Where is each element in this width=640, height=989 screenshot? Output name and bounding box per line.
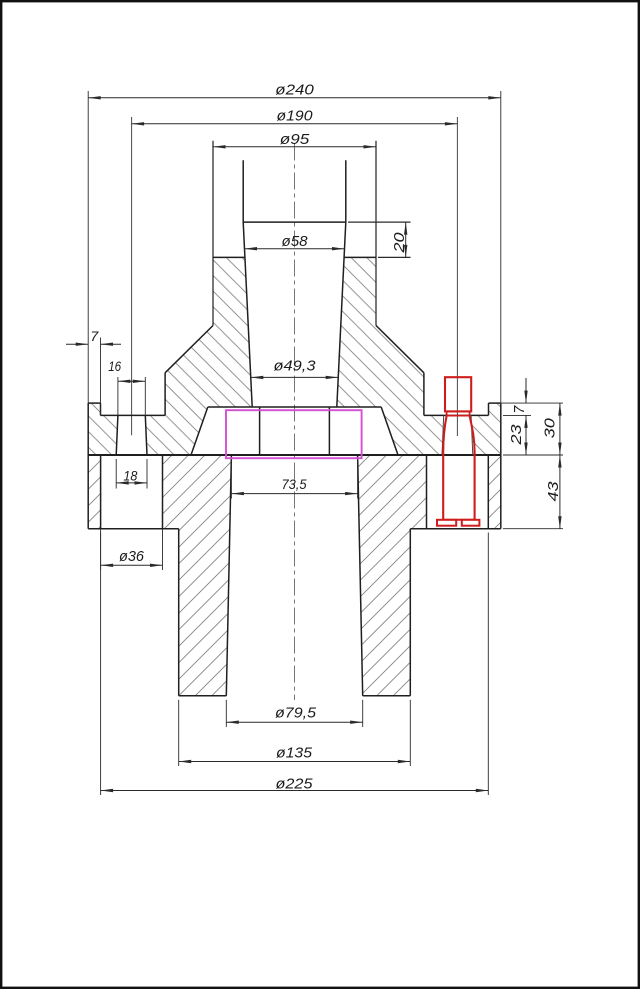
svg-text:ø225: ø225 xyxy=(276,775,314,792)
svg-text:18: 18 xyxy=(123,468,137,484)
svg-text:7: 7 xyxy=(90,328,99,344)
svg-text:ø190: ø190 xyxy=(277,108,314,125)
svg-text:ø36: ø36 xyxy=(119,548,145,565)
svg-text:43: 43 xyxy=(545,481,562,502)
svg-text:20: 20 xyxy=(391,232,408,254)
svg-text:23: 23 xyxy=(508,424,525,446)
svg-text:7: 7 xyxy=(511,405,528,414)
svg-text:ø58: ø58 xyxy=(282,233,309,250)
svg-text:ø95: ø95 xyxy=(280,131,310,148)
svg-text:ø135: ø135 xyxy=(276,744,313,761)
svg-text:73,5: 73,5 xyxy=(282,476,307,492)
svg-text:ø49,3: ø49,3 xyxy=(274,357,317,374)
svg-text:ø240: ø240 xyxy=(275,82,314,99)
svg-text:16: 16 xyxy=(108,358,121,374)
svg-text:ø79,5: ø79,5 xyxy=(275,705,317,722)
svg-text:30: 30 xyxy=(542,418,559,439)
